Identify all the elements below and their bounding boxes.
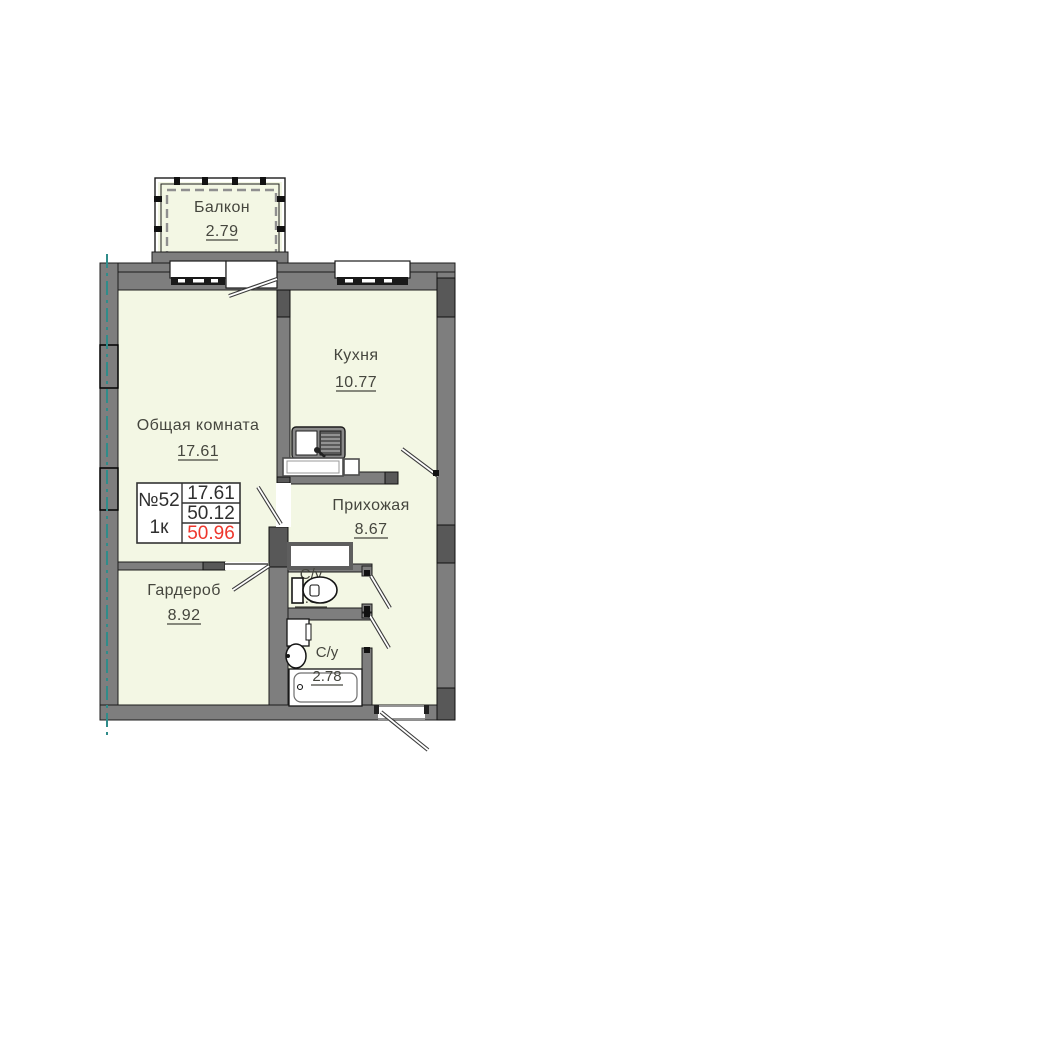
- wardrobe-area: 8.92: [168, 607, 201, 624]
- bathroom-right-wall: [362, 648, 372, 705]
- floor-plan-svg: Балкон 2.79 Кухня 10.77 Общая комната 17…: [0, 0, 1041, 1041]
- living-kitchen-wall: [277, 290, 290, 483]
- area-without-balcony-value: 50.12: [187, 503, 235, 524]
- toilet-icon: [292, 577, 337, 603]
- entrance-door: [374, 705, 429, 750]
- apartment-rooms-count: 1к: [150, 517, 170, 538]
- balcony-label: Балкон: [194, 199, 250, 216]
- apartment-number: №52: [138, 490, 180, 511]
- living-area-value: 17.61: [187, 483, 235, 504]
- hallway-area: 8.67: [355, 521, 388, 538]
- living-room-area: 17.61: [177, 443, 219, 460]
- right-wall: [437, 272, 455, 720]
- kitchen-label: Кухня: [334, 347, 379, 364]
- living-room-label: Общая комната: [137, 417, 260, 434]
- kitchen-counter: [283, 458, 359, 476]
- balcony-area: 2.79: [206, 223, 239, 240]
- bathroom-label: С/у: [316, 644, 339, 661]
- hallway-label: Прихожая: [332, 497, 409, 514]
- kitchen-window: [335, 261, 410, 285]
- bathroom-sink-icon: [286, 644, 306, 668]
- kitchen-sink-icon: [292, 427, 345, 459]
- wc-bathroom-wall: [288, 608, 372, 620]
- ventilation-shaft: [289, 544, 351, 568]
- washing-machine-icon: [287, 619, 311, 646]
- wardrobe-label: Гардероб: [147, 582, 221, 599]
- kitchen-area: 10.77: [335, 374, 377, 391]
- living-room-window: [170, 261, 226, 285]
- total-area-value: 50.96: [187, 523, 235, 544]
- bathroom-area: 2.78: [312, 668, 341, 685]
- balcony-floor: [158, 182, 282, 256]
- floor-plan-page: Балкон 2.79 Кухня 10.77 Общая комната 17…: [0, 0, 1041, 1041]
- apartment-info-table: №52 1к 17.61 50.12 50.96: [137, 483, 240, 544]
